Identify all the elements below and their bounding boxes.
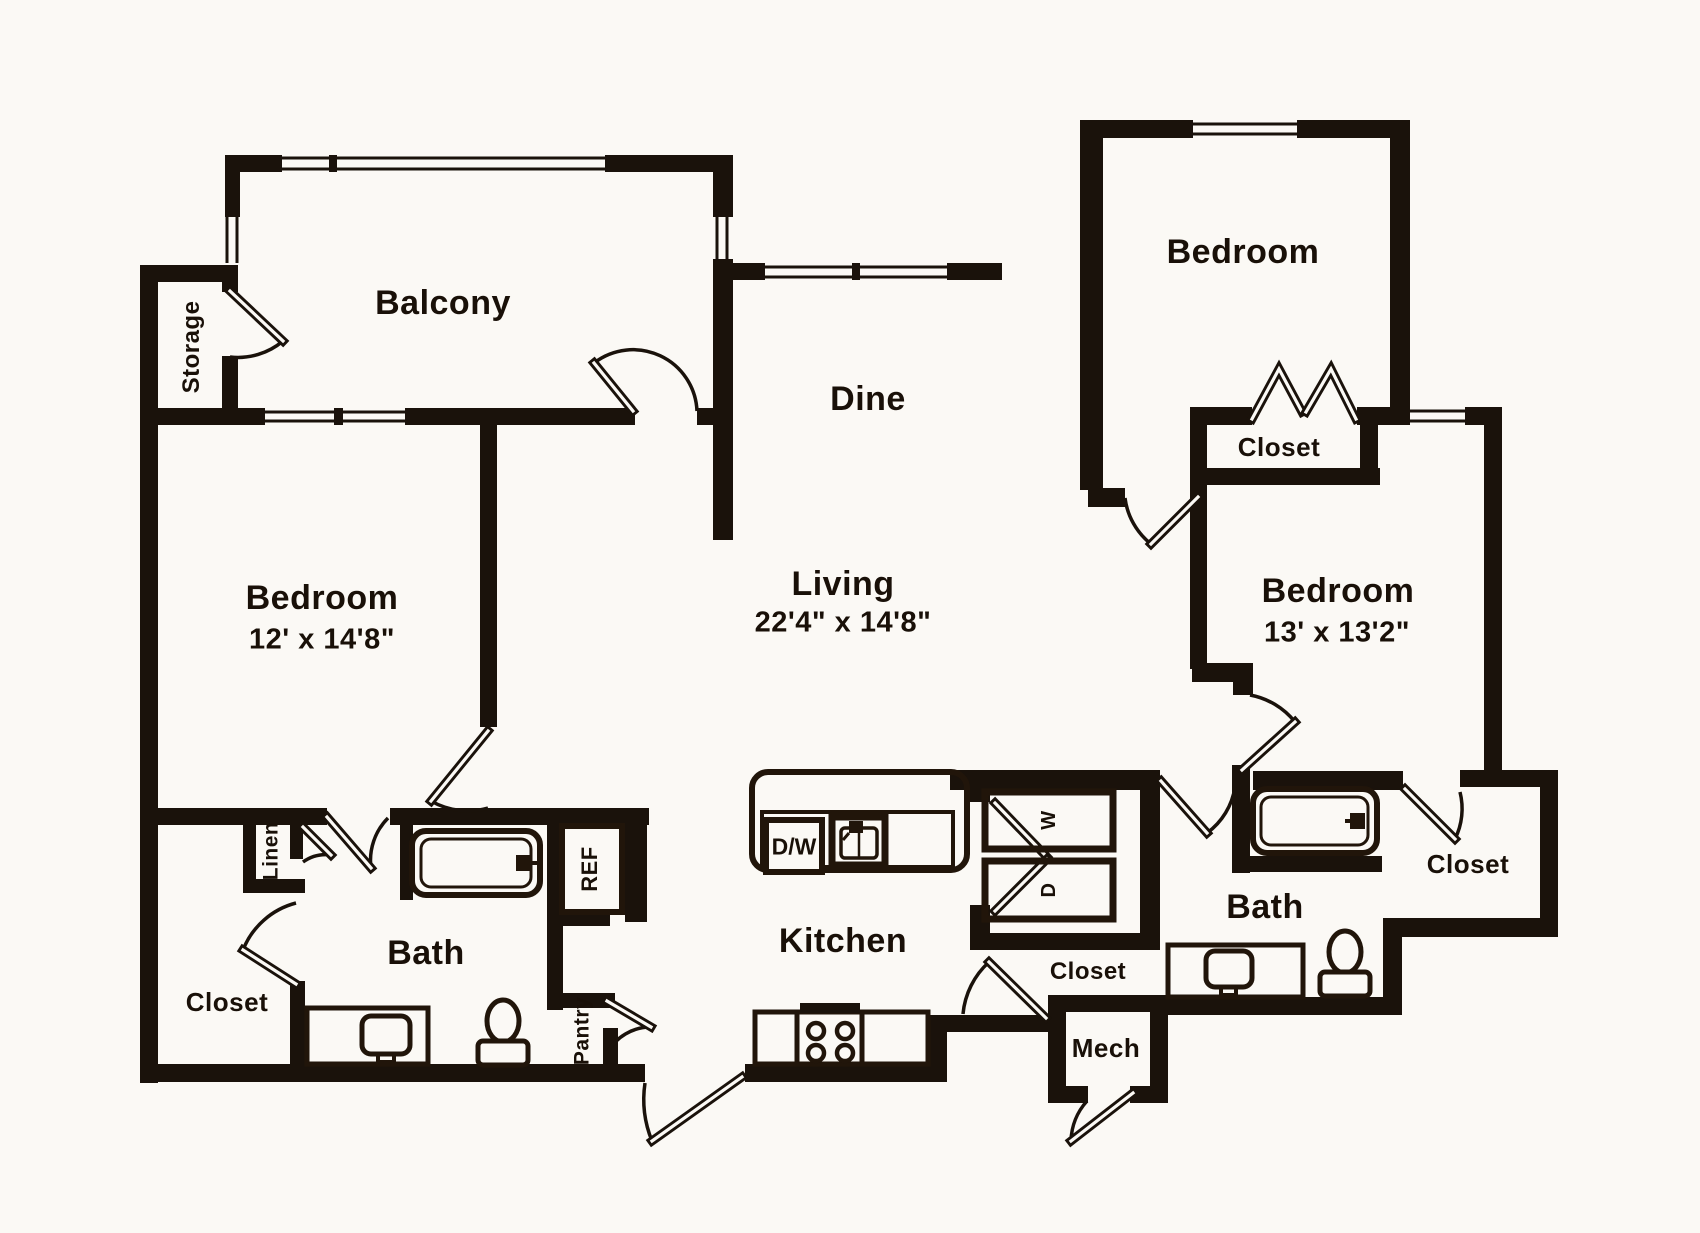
door-entry — [644, 1077, 742, 1141]
vanity-right — [1168, 945, 1303, 997]
room-label-bath-left: Bath — [387, 936, 465, 970]
room-label-kitchen: Kitchen — [779, 924, 907, 958]
room-label-bath-right: Bath — [1226, 890, 1304, 924]
appliance-label-dishwasher: D/W — [772, 836, 817, 859]
island-sink-icon — [832, 817, 885, 865]
sink-left-icon — [362, 1016, 410, 1062]
room-label-closet-top-right: Closet — [1238, 434, 1320, 460]
door-balcony — [594, 350, 697, 411]
door-bedroom-left — [431, 731, 488, 811]
room-label-closet-middle: Closet — [1050, 960, 1126, 984]
room-label-linen: Linen — [261, 822, 282, 881]
door-pantry — [607, 1001, 651, 1053]
bathtub-left-icon — [412, 831, 540, 895]
sink-right-icon — [1206, 951, 1252, 995]
door-closet-right — [1405, 789, 1462, 839]
room-label-storage: Storage — [180, 301, 204, 394]
vanity-left — [307, 1008, 428, 1064]
room-label-bedroom-right: Bedroom — [1262, 574, 1415, 608]
door-storage — [230, 291, 283, 357]
room-label-bedroom-left: Bedroom — [246, 581, 399, 615]
door-closet-middle — [963, 962, 1046, 1018]
appliance-label-refrigerator: REF — [579, 846, 601, 892]
room-label-closet-bottom-left: Closet — [186, 989, 268, 1015]
appliance-label-washer: W — [1039, 810, 1059, 829]
stove-icon — [755, 1003, 928, 1064]
door-bedroom-right — [1242, 695, 1295, 770]
door-closet-bottom-left — [243, 903, 296, 984]
floor-plan: Balcony Storage Bedroom 12' x 14'8" Dine… — [0, 0, 1700, 1233]
bathtub-right-icon — [1253, 789, 1377, 853]
door-bedroom-top-right — [1125, 497, 1198, 544]
door-bath-right — [1161, 781, 1235, 833]
room-label-closet-right: Closet — [1427, 851, 1509, 877]
room-label-living: Living — [791, 567, 894, 601]
bifold-closet-top-right — [1252, 369, 1356, 419]
toilet-left-icon — [478, 1000, 528, 1065]
room-dims-bedroom-left: 12' x 14'8" — [249, 626, 395, 655]
room-label-bedroom-top-right: Bedroom — [1167, 235, 1320, 269]
door-bath-left — [327, 817, 388, 868]
room-label-pantry: Pantry — [572, 997, 593, 1065]
room-label-dine: Dine — [830, 382, 906, 416]
door-linen — [303, 827, 331, 862]
toilet-right-icon — [1320, 931, 1370, 996]
room-label-balcony: Balcony — [375, 286, 511, 320]
room-dims-living: 22'4" x 14'8" — [755, 609, 932, 638]
room-dims-bedroom-right: 13' x 13'2" — [1264, 619, 1410, 648]
room-label-mech: Mech — [1072, 1035, 1140, 1061]
appliance-label-dryer: D — [1039, 883, 1059, 898]
